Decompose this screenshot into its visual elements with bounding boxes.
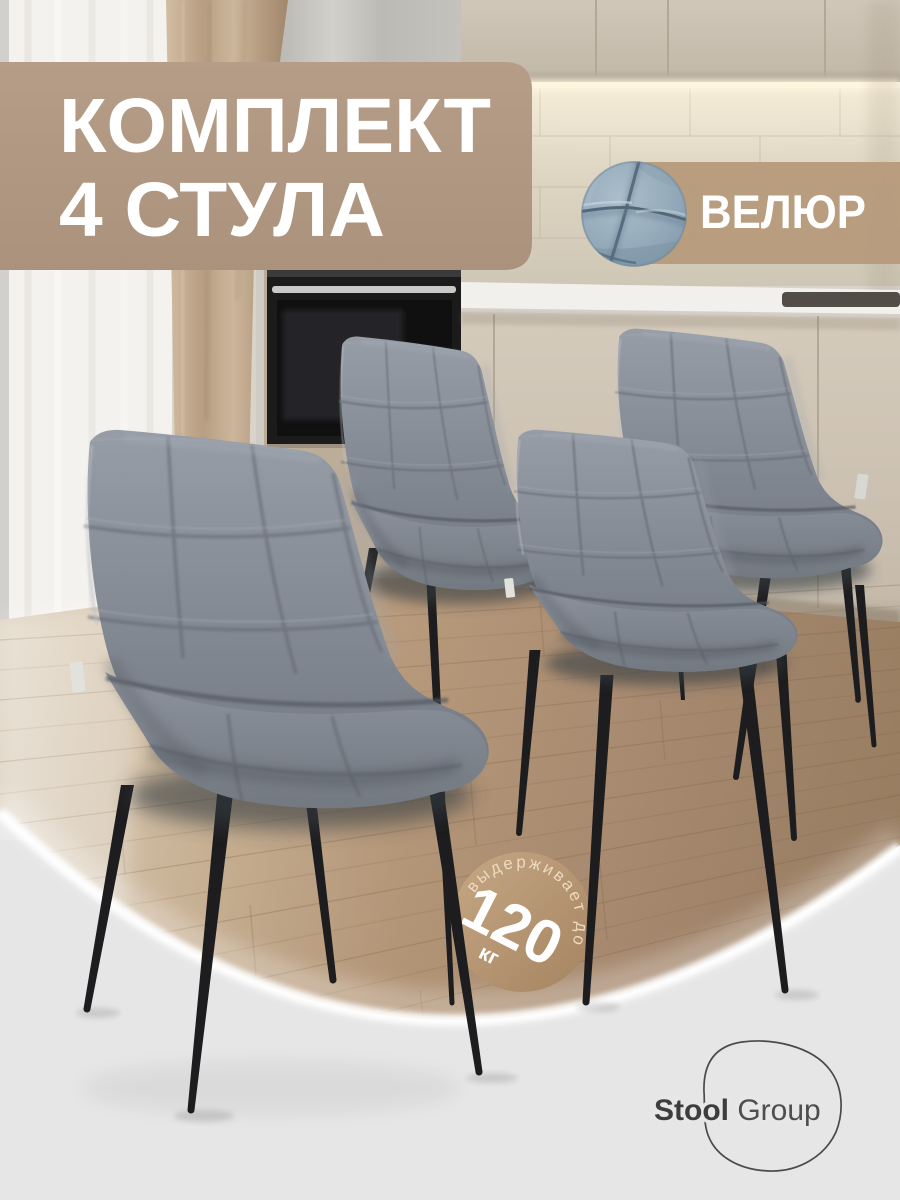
svg-text:4 СТУЛА: 4 СТУЛА <box>59 167 385 253</box>
svg-text:ВЕЛЮР: ВЕЛЮР <box>700 185 866 238</box>
svg-text:КОМПЛЕКТ: КОМПЛЕКТ <box>59 83 491 169</box>
svg-text:Stool Group: Stool Group <box>654 1094 821 1127</box>
